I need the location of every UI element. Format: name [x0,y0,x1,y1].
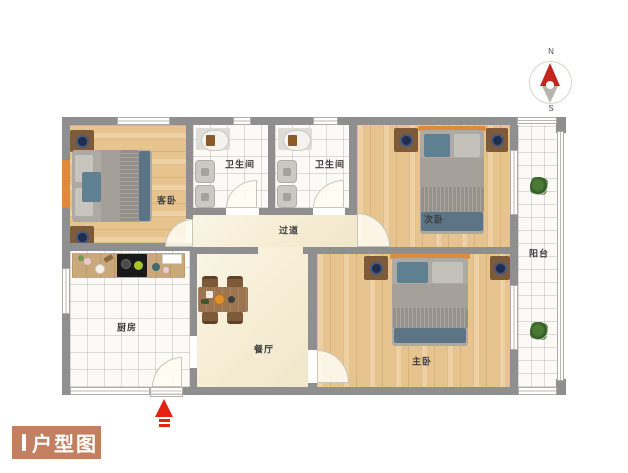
sink-basin-icon [201,193,209,201]
wall-corner-block [556,379,566,395]
dining-chair [227,311,243,324]
dish-icon [206,291,213,298]
lamp-icon [400,134,413,147]
entrance-threshold [150,387,183,397]
wall-kitchen-right [190,251,197,336]
toilet-icon [283,130,311,151]
master-nightstand-left [364,256,388,280]
cutting-board-icon [162,254,182,264]
wall-guest-right [186,125,193,219]
wall-master-top [303,247,512,254]
balcony-label: 阳台 [529,247,549,260]
master-bedroom-balcony-window [510,285,518,350]
bed-blanket [420,158,484,187]
bed-foot [394,328,467,343]
plant-icon [530,177,548,195]
balcony-top-window [517,117,557,124]
dish-icon [228,296,235,303]
entrance-arrow-bar [159,424,170,427]
entrance-arrow-icon [155,399,173,417]
wall-bathroom2-right [349,125,357,213]
toilet-icon [201,130,229,151]
window [233,117,251,125]
sink-basin-icon [283,193,291,201]
kitchen-item-icon [152,263,160,271]
second-nightstand-left [394,128,418,152]
master-bed [392,258,468,346]
sink-basin-icon [283,168,291,176]
toilet-tank-icon [288,135,297,146]
balcony-right-window [557,131,564,381]
lamp-icon [370,262,383,275]
sink-icon [277,160,297,183]
window [117,117,170,125]
bed-cushion [82,172,101,202]
dish-icon [214,294,225,305]
toilet-tank-icon [206,135,215,146]
lamp-icon [491,134,504,147]
wall-balcony-left [510,125,518,150]
wall-dining-master [308,254,317,350]
wall-bathroom-divider [268,125,275,215]
entrance-arrow-bar [159,419,170,422]
plant-icon [530,322,548,340]
compass-north-label: N [548,47,554,56]
master-nightstand-right [490,256,510,280]
bed-throw [392,308,468,328]
kitchen-item-icon [163,267,169,273]
bed-blanket [101,150,120,222]
floor-plan-canvas: 客卧 卫生间 卫生间 次卧 过道 厨房 餐厅 主卧 阳台 N S 户型图 [0,0,628,473]
bed-pillow [397,262,427,283]
lamp-icon [76,231,89,244]
second-nightstand-right [486,128,508,152]
wall-left [62,117,70,395]
kitchen-item-icon [78,255,84,261]
kitchen-bottom-window [70,387,150,395]
pot-icon [134,261,143,270]
bay-window-accent [62,160,70,208]
kitchen-left-window [62,268,70,314]
second-bedroom-label: 次卧 [424,213,444,226]
wall-bathroom-bottom [259,208,313,215]
wall-kitchen-right [190,368,197,387]
wall-balcony-left [510,350,518,387]
guest-nightstand-top [70,130,94,152]
second-bedroom-balcony-window [510,150,518,215]
bathroom-1-label: 卫生间 [225,158,255,171]
bed-pillow [454,134,480,157]
wall-dining-master [308,383,317,387]
compass-south-label: S [548,104,553,113]
lamp-icon [76,135,89,148]
bed-blanket [392,284,468,309]
bed-throw [420,187,484,212]
dining-chair [202,311,218,324]
wall-hallway-bottom [193,247,258,254]
dish-icon [201,299,209,304]
kitchen-item-icon [95,264,105,274]
bed-pillow [432,262,462,283]
window [313,117,338,125]
sink-basin-icon [201,168,209,176]
guest-bed [72,150,152,222]
bed-throw [120,150,139,222]
hallway-label: 过道 [279,224,299,237]
kitchen-item-icon [84,258,91,265]
compass-hub-icon [546,81,554,89]
wall-bathroom-bottom [345,208,357,215]
stove-burner-icon [121,259,131,269]
sink-icon [195,185,215,208]
page-title: 户型图 [32,428,98,457]
balcony-bottom-window [518,387,557,395]
sink-icon [277,185,297,208]
sink-icon [195,160,215,183]
bed-foot [139,151,150,220]
bathroom-2-label: 卫生间 [315,158,345,171]
dining-room-label: 餐厅 [254,343,274,356]
title-badge: 户型图 [12,426,101,459]
lamp-icon [494,262,507,275]
title-accent-bar [22,434,26,451]
wall-bathroom-bottom [193,208,226,215]
master-bedroom-label: 主卧 [412,355,432,368]
hallway-floor [193,215,357,247]
guest-bedroom-label: 客卧 [157,194,177,207]
bed-pillow [424,134,450,157]
wall-balcony-left [510,215,518,285]
kitchen-label: 厨房 [117,321,137,334]
